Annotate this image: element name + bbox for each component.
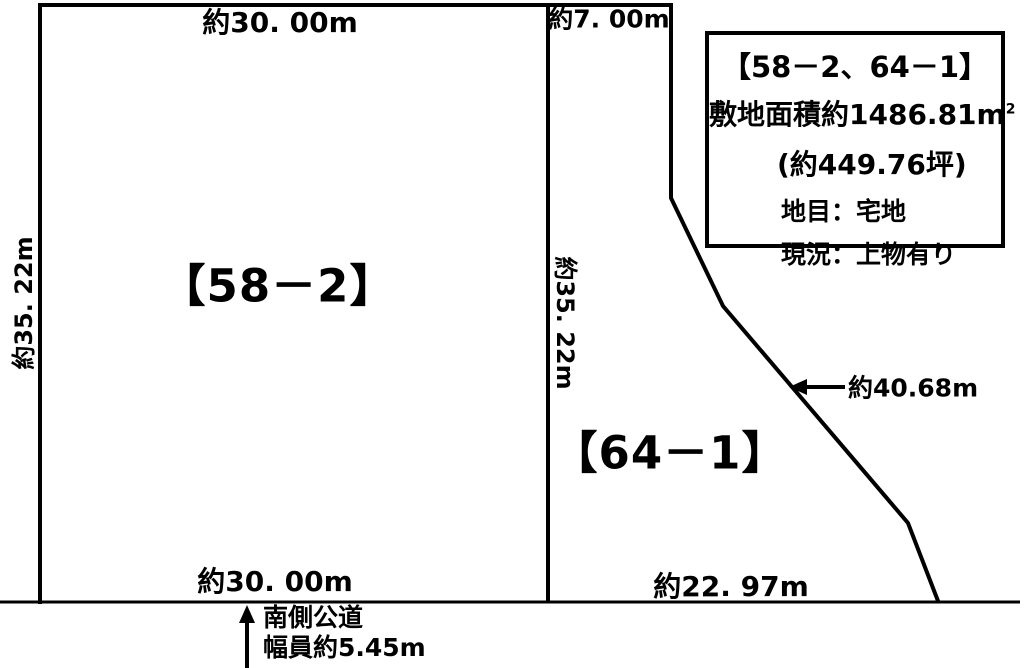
dim-bottom-right-width-label: 約22. 97m (653, 573, 809, 601)
dim-top-width-label: 約30. 00m (202, 9, 358, 37)
dim-top-right-width-label: 約7. 00m (548, 7, 669, 32)
road-direction-arrow-up-icon (239, 605, 255, 668)
parcel-64-1-label: 【64－1】 (553, 431, 788, 476)
parcel-58-2-label: 【58－2】 (161, 264, 396, 309)
info-box-area-main: 敷地面積約1486.81m (709, 98, 1006, 131)
dim-diagonal-length-label: 約40.68m (848, 376, 978, 401)
info-box-area: 敷地面積約1486.81m2 (709, 93, 1001, 133)
info-box-land-category: 地目：宅地 (709, 192, 1001, 228)
dim-divider-height-label: 約35. 22m (553, 256, 577, 389)
info-box-area-superscript: 2 (1006, 102, 1016, 118)
info-box-title: 【58－2、64－1】 (709, 44, 1001, 86)
dim-bottom-left-width-label: 約30. 00m (197, 568, 353, 596)
land-plot-diagram: 約30. 00m 約7. 00m 約35. 22m 約35. 22m 約30. … (0, 0, 1024, 668)
road-name-label: 南側公道 (263, 605, 363, 630)
info-box-current-status: 現況：上物有り (709, 235, 1001, 271)
dim-left-height-label: 約35. 22m (12, 236, 36, 369)
info-box: 【58－2、64－1】 敷地面積約1486.81m2 (約449.76坪) 地目… (705, 31, 1005, 248)
road-width-label: 幅員約5.45m (263, 635, 426, 660)
info-box-tsubo: (約449.76坪) (709, 143, 1001, 183)
